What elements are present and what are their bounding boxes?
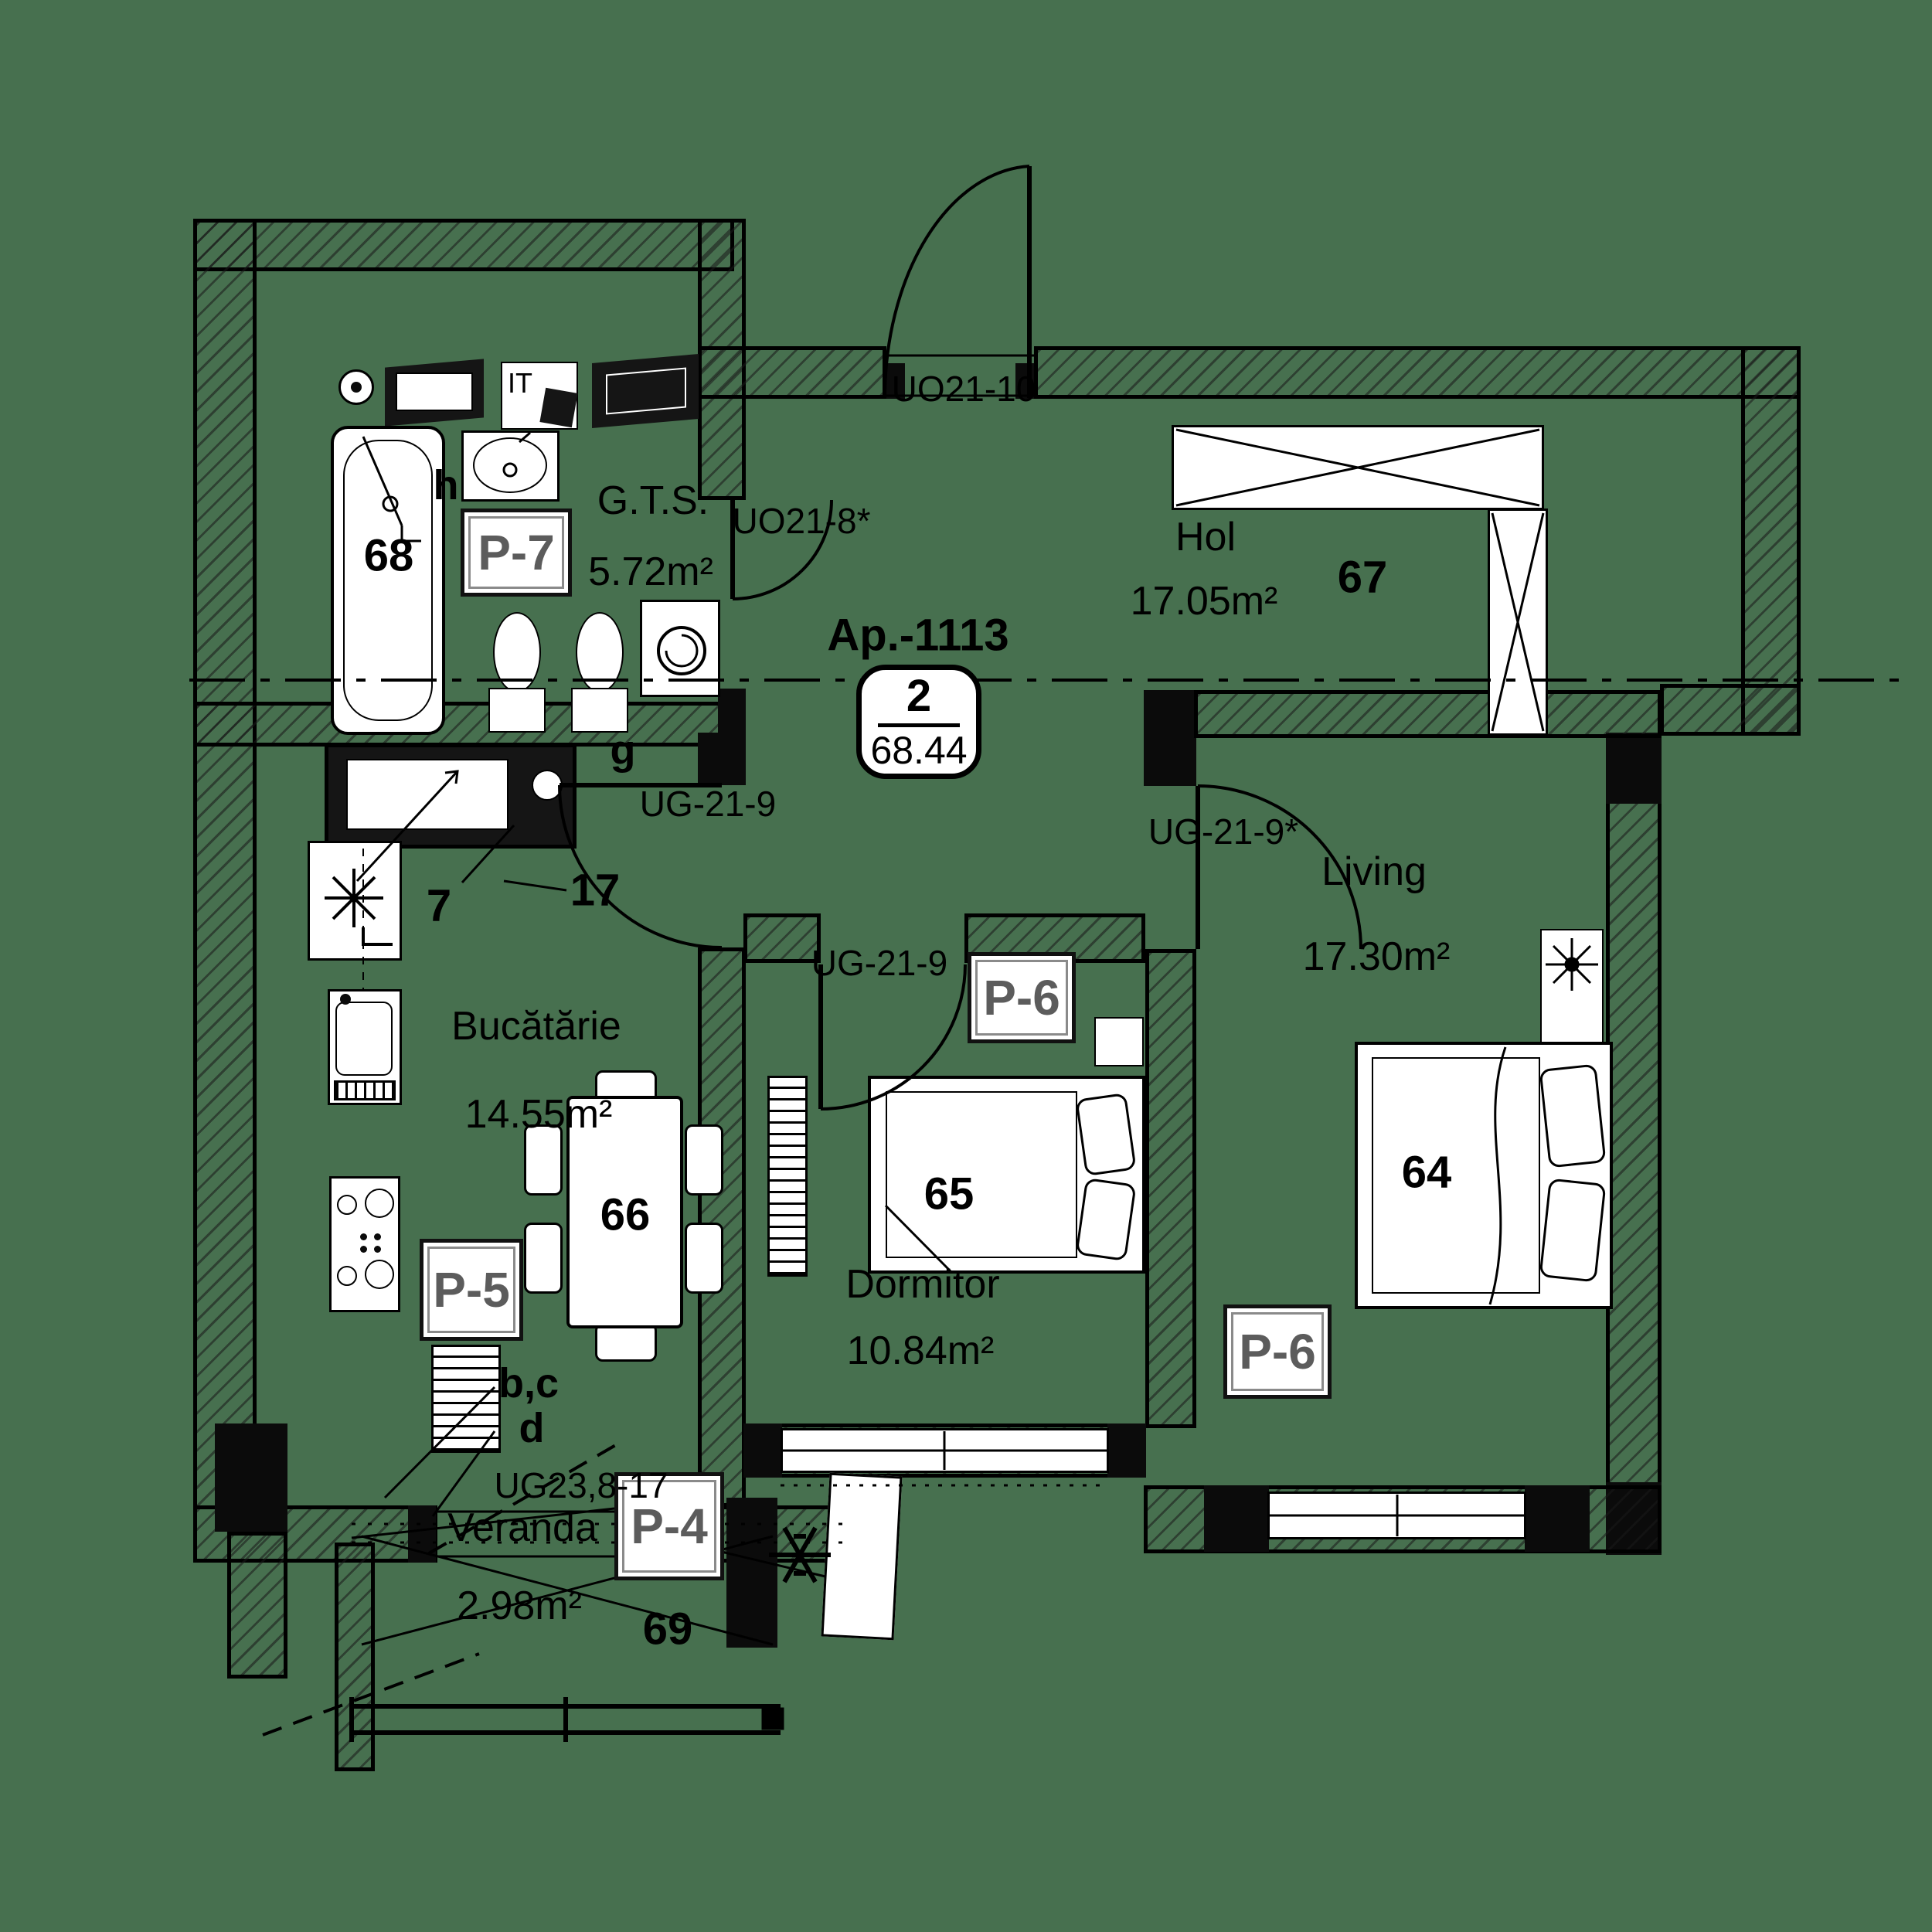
- room-number-hol: 67: [1338, 552, 1388, 604]
- p6-living-label: P-6: [1239, 1323, 1316, 1380]
- bed-65-pillow-2: [1075, 1178, 1136, 1261]
- window-tag-p6-living: P-6: [1223, 1304, 1332, 1399]
- room-area-hol: 17.05m²: [1131, 578, 1278, 624]
- window-tag-p7: P-7: [461, 509, 572, 597]
- p7-label: P-7: [478, 524, 555, 581]
- living-window: [1267, 1492, 1526, 1539]
- floor-plan: 2 68.44 P-7 P-6 P-6 P-5 P-4 Ap.-1113 G.T…: [0, 0, 1932, 1932]
- room-area-living: 17.30m²: [1303, 934, 1451, 980]
- room-number-kitchen: 66: [600, 1189, 651, 1241]
- wall-bedroom-living: [1145, 949, 1196, 1428]
- stove-knob-4: [374, 1246, 381, 1253]
- wall-hol-right: [1741, 346, 1801, 736]
- door-label-living: UG-21-9*: [1148, 811, 1298, 852]
- vent-fan-center: [351, 382, 362, 393]
- bedroom-radiator: [767, 1076, 808, 1277]
- room-name-kitchen: Bucătărie: [451, 1003, 621, 1049]
- pillar-hall-living: [1144, 690, 1196, 786]
- entrance-door: [885, 166, 1034, 398]
- room-number-gts: 68: [364, 530, 414, 582]
- window-tag-p5: P-5: [420, 1239, 523, 1341]
- jamb-veranda-door-left: [408, 1505, 436, 1563]
- room-number-bedroom: 65: [924, 1168, 975, 1220]
- annotation-g: g: [611, 726, 636, 774]
- pillar-kitchen-corner: [698, 733, 746, 785]
- bath-shelf-right-inner: [606, 367, 686, 414]
- wall-hall-bedroom-left: [743, 913, 821, 963]
- room-number-veranda: 69: [643, 1604, 693, 1655]
- bed-64-pillow-2: [1539, 1178, 1607, 1282]
- annotation-d: d: [519, 1404, 545, 1452]
- wall-bath-bottom: [193, 702, 746, 747]
- door-label-gts: UO21-8*: [733, 500, 871, 542]
- wall-hol-living-step: [1660, 684, 1801, 736]
- room-area-veranda: 2.98m²: [457, 1583, 582, 1629]
- wall-living-right: [1606, 733, 1662, 1555]
- chair-left-2: [524, 1223, 563, 1294]
- pier-bottom-left: [227, 1532, 287, 1679]
- bathroom-sink-bowl: [473, 437, 547, 493]
- room-name-gts: G.T.S.: [597, 478, 709, 524]
- jamb-bedroom-window-left: [743, 1423, 782, 1478]
- pillar-living-right-top: [1606, 733, 1662, 804]
- shower-drain: [532, 770, 563, 801]
- wall-hall-top: [1034, 346, 1801, 399]
- door-label-bedroom: UG-21-9: [811, 942, 947, 984]
- room-name-bedroom: Dormitor: [845, 1261, 999, 1308]
- kitchen-sink-drainer: [334, 1080, 396, 1100]
- door-label-entrance: UO21-10: [892, 368, 1036, 410]
- boiler-unit: [308, 841, 402, 961]
- door-label-kitchen: UG-21-9: [640, 783, 776, 825]
- room-number-living: 64: [1402, 1147, 1452, 1199]
- bed-64-pillow-1: [1539, 1063, 1607, 1168]
- corner-block-bottom-left: [215, 1423, 287, 1532]
- wall-entry-niche-top: [698, 346, 886, 399]
- annotation-17: 17: [570, 865, 621, 917]
- stove-burner-4: [365, 1260, 394, 1289]
- unit-total-area: 68.44: [870, 730, 967, 771]
- kitchen-sink-basin: [335, 1002, 393, 1076]
- stove-burner-1: [337, 1195, 357, 1215]
- bed-65-mattress: [886, 1091, 1077, 1258]
- annotation-7: 7: [427, 880, 451, 932]
- bath-mirror: [396, 372, 473, 411]
- unit-badge-divider: [878, 723, 961, 727]
- jamb-living-window-left: [1204, 1485, 1269, 1552]
- toilet-1-bowl: [493, 612, 541, 692]
- kitchen-sink-tap: [340, 994, 351, 1005]
- annotation-it: IT: [508, 367, 532, 400]
- chair-right-1: [685, 1124, 723, 1196]
- stove-knob-3: [360, 1246, 367, 1253]
- apartment-title: Ap.-1113: [827, 610, 1009, 662]
- ac-unit: [821, 1473, 903, 1641]
- wall-bath-top: [193, 219, 734, 271]
- annotation-bc: b,c: [498, 1359, 559, 1407]
- door-label-veranda: UG23,8-17: [494, 1464, 668, 1506]
- wardrobe-top: [1172, 425, 1544, 510]
- p6-bedroom-label: P-6: [983, 969, 1060, 1026]
- room-name-hol: Hol: [1175, 514, 1236, 560]
- chair-right-2: [685, 1223, 723, 1294]
- stove-burner-2: [365, 1189, 394, 1218]
- washing-machine: [640, 600, 720, 697]
- p4-label: P-4: [631, 1498, 708, 1555]
- p5-label: P-5: [433, 1261, 510, 1318]
- wall-veranda-left: [335, 1543, 375, 1771]
- toilet-1-tank: [488, 688, 546, 733]
- wall-veranda-right: [726, 1498, 777, 1648]
- room-name-veranda: Veranda: [447, 1505, 597, 1551]
- jamb-bedroom-window-right: [1107, 1423, 1146, 1478]
- window-tag-p6-bedroom: P-6: [968, 952, 1076, 1043]
- unit-rooms-count: 2: [906, 673, 931, 720]
- bed-64-mattress: [1372, 1057, 1540, 1294]
- annotation-h: h: [434, 461, 459, 509]
- jamb-living-window-right: [1525, 1485, 1590, 1552]
- room-area-kitchen: 14.55m²: [465, 1091, 613, 1138]
- bed-65-pillow-1: [1075, 1093, 1136, 1176]
- room-area-gts: 5.72m²: [588, 549, 713, 595]
- room-area-bedroom: 10.84m²: [847, 1328, 995, 1374]
- bedroom-nightstand: [1094, 1017, 1144, 1066]
- chair-bottom: [595, 1323, 657, 1362]
- wardrobe-side: [1488, 509, 1548, 736]
- plant-shelf: [1540, 929, 1604, 1043]
- toilet-2-bowl: [576, 612, 624, 692]
- kitchen-radiator: [431, 1345, 501, 1453]
- shower-cabin-tray: [346, 759, 509, 830]
- stove-knob-1: [360, 1233, 367, 1240]
- it-equipment: [539, 388, 577, 428]
- room-name-living: Living: [1321, 849, 1427, 895]
- stove-burner-3: [337, 1266, 357, 1286]
- bedroom-window: [781, 1428, 1109, 1473]
- wall-left: [193, 219, 257, 1509]
- unit-badge: 2 68.44: [856, 665, 981, 779]
- stove-knob-2: [374, 1233, 381, 1240]
- wall-hol-living: [1194, 690, 1662, 738]
